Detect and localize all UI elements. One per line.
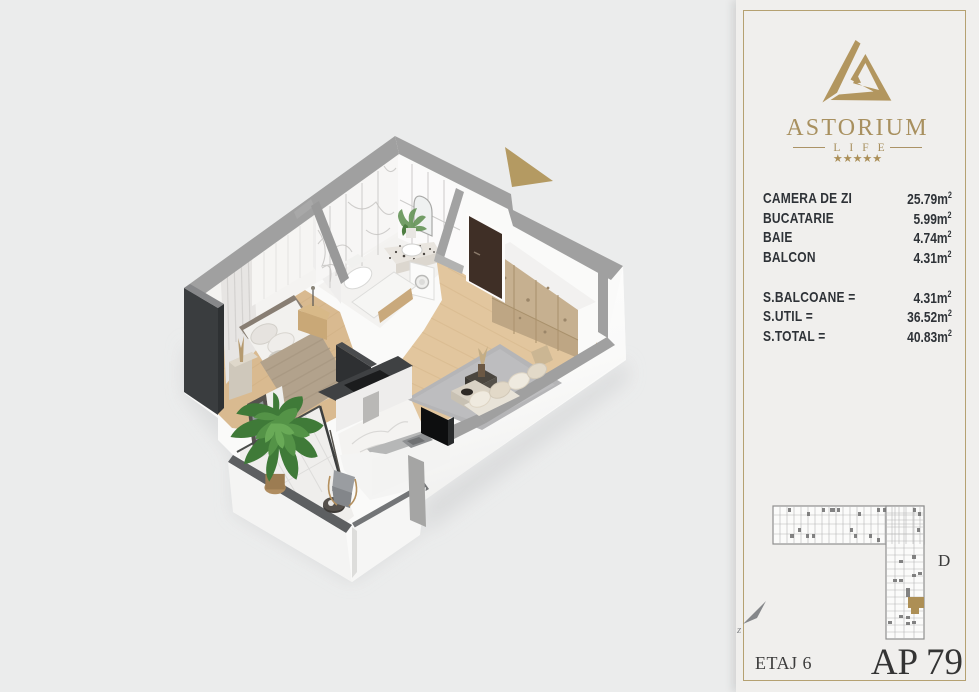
svg-text:z: z (736, 624, 742, 636)
svg-text:D: D (938, 551, 950, 570)
